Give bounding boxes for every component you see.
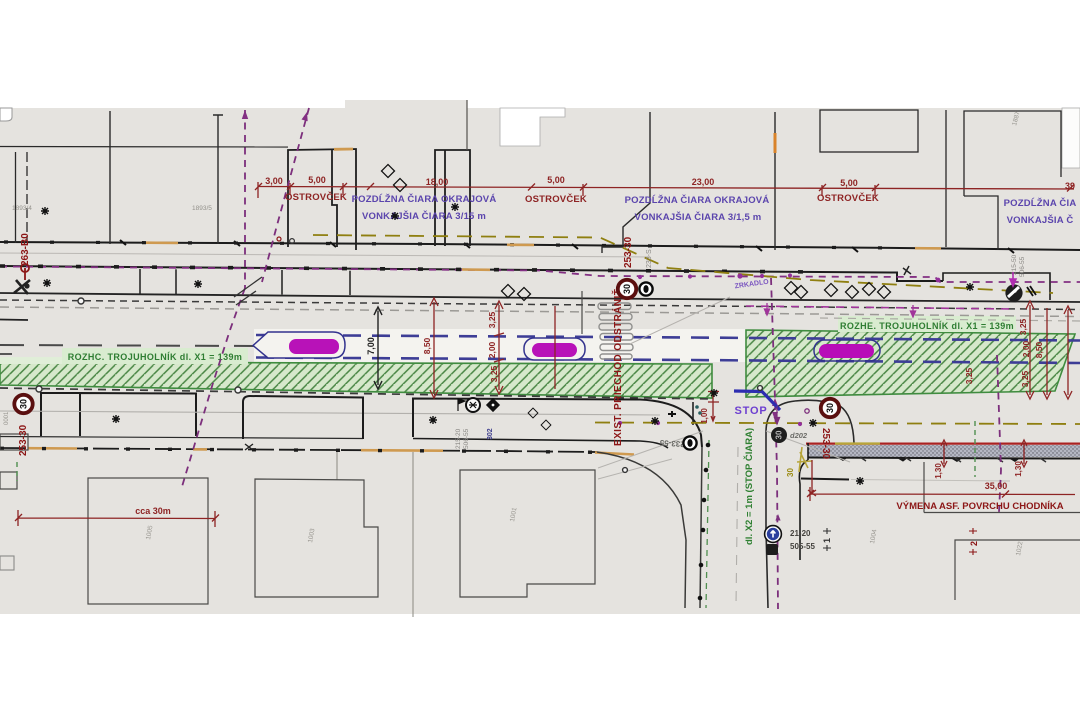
svg-text:3,25: 3,25 — [489, 365, 499, 382]
svg-text:VONKAJŠIA ČIARA 3/1,5 m: VONKAJŠIA ČIARA 3/1,5 m — [635, 211, 762, 223]
svg-text:23,00: 23,00 — [692, 177, 715, 187]
svg-text:cca 30m: cca 30m — [135, 506, 171, 516]
svg-text:1,00: 1,00 — [700, 408, 709, 424]
svg-text:5,00: 5,00 — [547, 175, 565, 185]
svg-text:1: 1 — [822, 538, 832, 543]
svg-text:1893/5: 1893/5 — [192, 205, 212, 212]
svg-text:dl. X2 = 1m (STOP ČIARA): dl. X2 = 1m (STOP ČIARA) — [743, 428, 755, 545]
svg-text:2,00: 2,00 — [1021, 340, 1031, 357]
svg-text:3,25: 3,25 — [487, 311, 497, 328]
svg-text:30: 30 — [775, 430, 784, 439]
svg-text:215-50: 215-50 — [1011, 254, 1018, 275]
svg-text:OSTROVČEK: OSTROVČEK — [285, 191, 347, 203]
svg-text:233-S: 233-S — [646, 249, 653, 268]
svg-text:505-55: 505-55 — [790, 542, 815, 551]
svg-text:3,00: 3,00 — [265, 176, 283, 186]
svg-text:3,25: 3,25 — [964, 367, 974, 384]
svg-text:2: 2 — [969, 541, 979, 546]
svg-text:OSTROVČEK: OSTROVČEK — [525, 193, 587, 205]
svg-text:ROZHE. TROJUHOLNÍK dl. X1 = 13: ROZHE. TROJUHOLNÍK dl. X1 = 139m — [840, 321, 1014, 331]
svg-text:21-20: 21-20 — [790, 529, 811, 538]
svg-text:ROZHC. TROJUHOLNÍK dl. X1 = 13: ROZHC. TROJUHOLNÍK dl. X1 = 139m — [68, 352, 243, 362]
svg-text:263-B0: 263-B0 — [20, 233, 31, 266]
svg-text:STOP: STOP — [735, 405, 768, 417]
svg-text:POZDĹŽNA ČIARA OKRAJOVÁ: POZDĹŽNA ČIARA OKRAJOVÁ — [625, 194, 770, 206]
svg-text:506-55: 506-55 — [1019, 256, 1026, 277]
svg-text:EXIST. PRIECHOD ODSTRÁNIŤ: EXIST. PRIECHOD ODSTRÁNIŤ — [611, 289, 624, 446]
svg-text:d202: d202 — [790, 431, 808, 440]
svg-text:8,50: 8,50 — [1034, 341, 1044, 358]
svg-text:3,25: 3,25 — [1020, 370, 1030, 387]
svg-text:253-30: 253-30 — [820, 428, 831, 460]
svg-text:POZDĹŽNA ČIA: POZDĹŽNA ČIA — [1004, 197, 1077, 209]
svg-text:5,00: 5,00 — [840, 178, 858, 188]
svg-text:0001: 0001 — [4, 411, 10, 425]
svg-text:2,00: 2,00 — [487, 341, 497, 358]
svg-text:VÝMENA ASF. POVRCHU CHODNÍKA: VÝMENA ASF. POVRCHU CHODNÍKA — [896, 500, 1063, 512]
svg-text:VONKAJŠIA ČIARA 3/15 m: VONKAJŠIA ČIARA 3/15 m — [362, 210, 486, 222]
svg-text:302: 302 — [487, 428, 494, 440]
svg-text:8,50: 8,50 — [422, 337, 432, 354]
svg-text:VONKAJŠIA Č: VONKAJŠIA Č — [1007, 214, 1074, 226]
svg-text:OSTROVČEK: OSTROVČEK — [817, 192, 879, 204]
svg-text:253-30: 253-30 — [18, 424, 29, 456]
svg-text:30: 30 — [786, 468, 795, 477]
svg-text:1,30: 1,30 — [934, 463, 943, 479]
svg-text:506-55: 506-55 — [463, 428, 470, 449]
svg-text:1893/4: 1893/4 — [12, 205, 32, 212]
svg-text:5,00: 5,00 — [308, 175, 326, 185]
svg-text:18,00: 18,00 — [426, 177, 449, 187]
svg-text:3,25: 3,25 — [1018, 318, 1028, 335]
svg-text:253-30: 253-30 — [623, 236, 634, 268]
svg-text:233-55: 233-55 — [659, 438, 685, 449]
svg-text:39: 39 — [1065, 181, 1075, 191]
svg-text:POZDĹŽNA ČIARA OKRAJOVÁ: POZDĹŽNA ČIARA OKRAJOVÁ — [352, 193, 497, 205]
svg-text:215-20: 215-20 — [455, 428, 462, 449]
svg-text:7,00: 7,00 — [366, 337, 376, 355]
svg-text:1,30: 1,30 — [1014, 461, 1023, 477]
svg-text:35,00: 35,00 — [985, 481, 1008, 491]
